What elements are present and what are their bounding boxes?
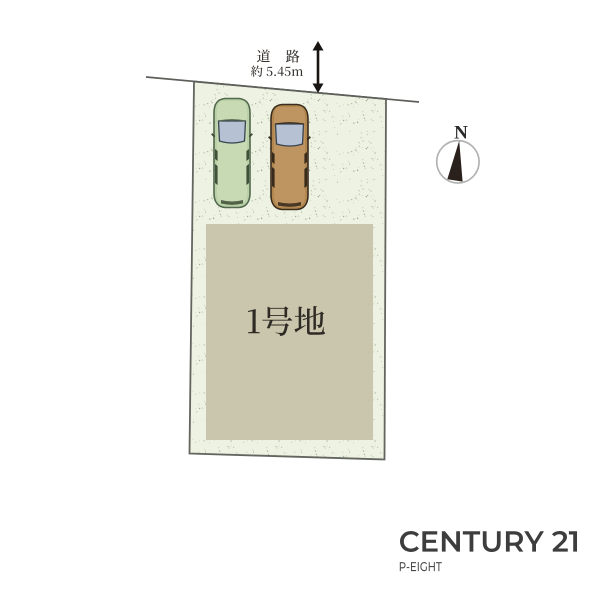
svg-text:N: N (454, 123, 468, 144)
